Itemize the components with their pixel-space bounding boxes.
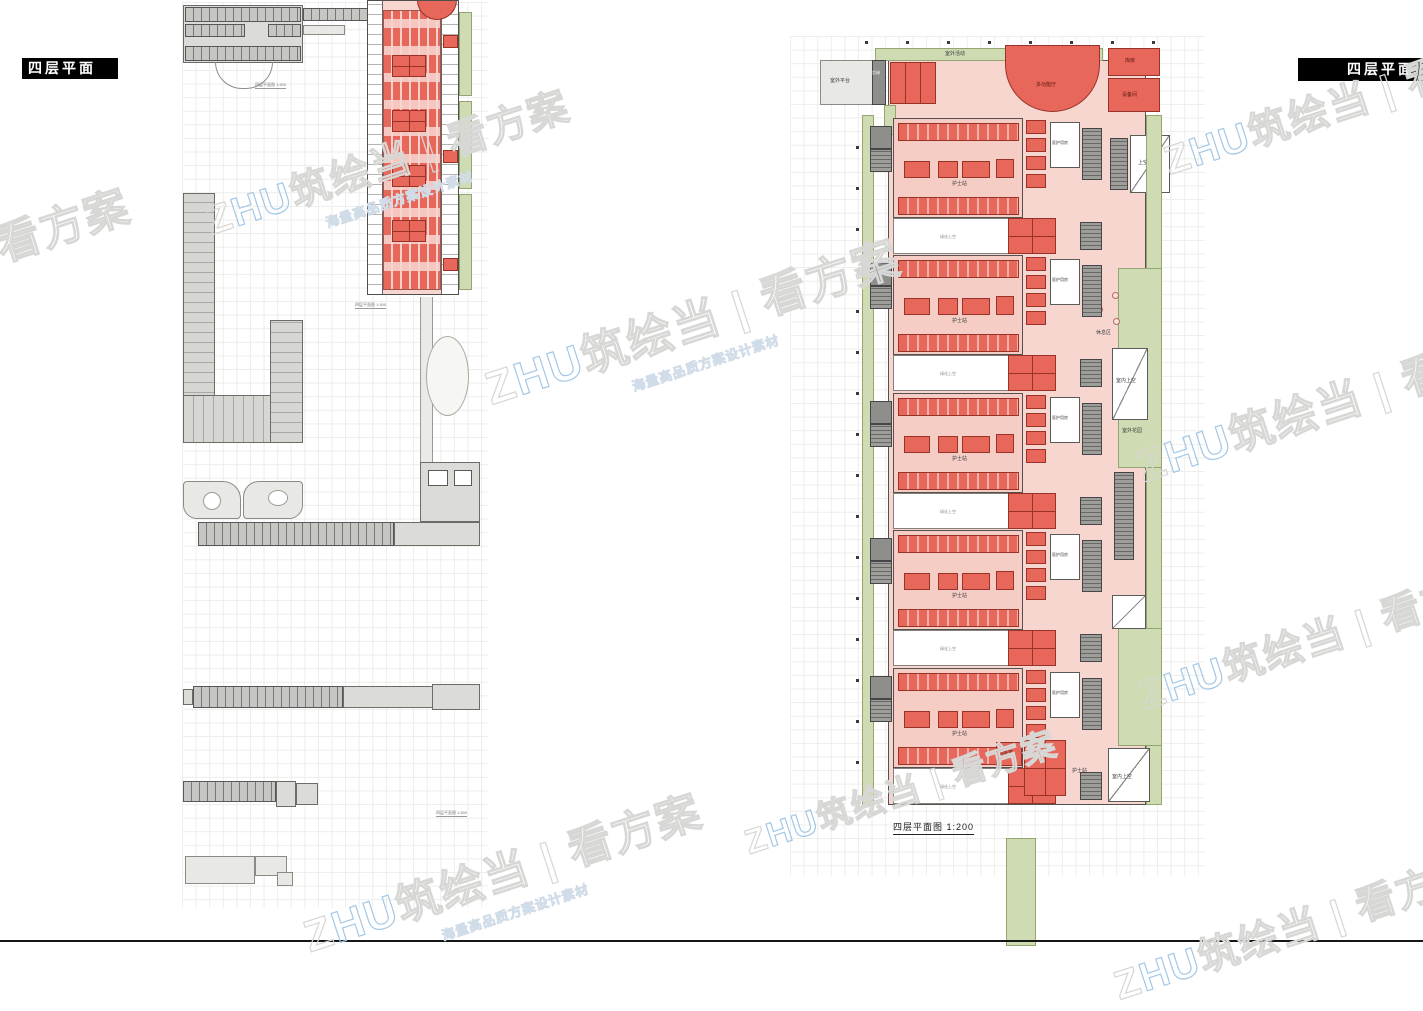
ward-room — [996, 296, 1014, 315]
green-void-label: 绿化上空 — [940, 371, 956, 377]
ward-room — [962, 161, 990, 178]
left-complex-room-row — [185, 7, 301, 22]
patient-bed-row — [898, 123, 1019, 141]
treatment-room — [1026, 395, 1046, 409]
stair-shaft-west — [870, 676, 892, 699]
treatment-room — [1026, 293, 1046, 307]
bottom-nurse-label: 护士站 — [1072, 768, 1087, 774]
ward-room — [904, 436, 930, 453]
elevator-shaft — [1082, 265, 1102, 317]
ward-modules: 护士站 医护用房 绿化上空 护士站 医护用房 — [700, 0, 1423, 946]
ward-room — [996, 571, 1014, 590]
staff-room-label: 医护用房 — [1052, 277, 1068, 283]
doctor-office-suite — [1008, 355, 1056, 391]
nurse-station-label: 护士站 — [952, 593, 967, 599]
stair-shaft-west — [870, 699, 892, 722]
ward-room — [962, 298, 990, 315]
strip2-rooms — [193, 686, 343, 708]
strip3-rooms — [183, 781, 276, 802]
treatment-room — [1026, 724, 1046, 738]
staff-room-label: 医护用房 — [1052, 415, 1068, 421]
green-void: 绿化上空 — [893, 355, 1013, 391]
green-void-label: 绿化上空 — [940, 234, 956, 240]
bottom-rule — [0, 940, 1423, 942]
treatment-room — [1026, 586, 1046, 600]
ward-room — [938, 298, 958, 315]
ward-room — [996, 159, 1014, 178]
treatment-room — [1026, 311, 1046, 325]
elevator-shaft — [1082, 540, 1102, 592]
service-room — [428, 470, 448, 486]
stair-shaft-west — [870, 263, 892, 286]
treatment-room — [1026, 568, 1046, 582]
ward-room — [904, 711, 930, 728]
garden-pond — [268, 490, 288, 506]
treatment-room — [1026, 670, 1046, 684]
treatment-room — [1026, 156, 1046, 170]
treatment-room — [1026, 257, 1046, 271]
treatment-room — [1026, 532, 1046, 546]
left-plan-caption-1: 四层平面图 1:500 — [255, 82, 286, 89]
duty-room-label: 值班室 — [998, 750, 1013, 756]
treatment-room — [1026, 174, 1046, 188]
staff-room-label: 医护用房 — [1052, 552, 1068, 558]
treatment-room — [1026, 275, 1046, 289]
stair-shaft-west — [870, 424, 892, 447]
patient-bed-row — [898, 535, 1019, 553]
patient-bed-row — [898, 260, 1019, 278]
right-plan-caption: 四层平面图 1:200 — [893, 820, 974, 835]
strip2-corridor — [343, 686, 433, 708]
ward-module: 护士站 医护用房 绿化上空 — [868, 668, 1158, 805]
u-building-east-wing — [270, 320, 303, 443]
garden-pond — [203, 492, 221, 510]
stair-shaft-west — [870, 286, 892, 309]
louver-shaft — [1080, 634, 1102, 662]
treatment-room — [1026, 706, 1046, 720]
treatment-room — [1026, 413, 1046, 427]
oval-lawn — [426, 336, 469, 416]
treatment-room — [1026, 550, 1046, 564]
ward-room — [962, 436, 990, 453]
left-plan-caption-3: 四层平面图 1:500 — [436, 810, 467, 817]
ward-room — [904, 573, 930, 590]
green-void: 绿化上空 — [893, 768, 1013, 804]
patient-bed-row — [898, 472, 1019, 490]
ward-room — [938, 573, 958, 590]
staff-room-label: 医护用房 — [1052, 140, 1068, 146]
ward-module: 护士站 医护用房 绿化上空 — [868, 393, 1158, 530]
green-void-label: 绿化上空 — [940, 509, 956, 515]
service-room — [454, 470, 472, 486]
ward-module: 护士站 医护用房 绿化上空 — [868, 530, 1158, 667]
doctor-office-suite — [1008, 630, 1056, 666]
strip2-stub — [183, 689, 193, 705]
ward-block: 护士站 — [893, 255, 1023, 355]
floor-plan-sheet: { "page": { "title_left": "四层平面", "title… — [0, 0, 1423, 946]
stair-shaft-west — [870, 401, 892, 424]
elevator-shaft — [1082, 128, 1102, 180]
left-complex-link-wing — [303, 8, 369, 21]
block4-step — [277, 872, 293, 886]
ward-block: 护士站 — [893, 393, 1023, 493]
ward-room — [938, 436, 958, 453]
tower-garden-strip — [459, 12, 472, 96]
louver-shaft — [1080, 222, 1102, 250]
doctor-office-suite — [1008, 218, 1056, 254]
green-void: 绿化上空 — [893, 493, 1013, 529]
elevator-shaft — [1082, 403, 1102, 455]
left-complex-annex — [303, 25, 345, 35]
louver-shaft — [1080, 497, 1102, 525]
stair-shaft-west — [870, 538, 892, 561]
ward-room — [962, 573, 990, 590]
treatment-room — [1026, 688, 1046, 702]
strip2-end-block — [432, 684, 480, 710]
patient-bed-row — [898, 673, 1019, 691]
nurse-station-label: 护士站 — [952, 456, 967, 462]
tower-outline — [367, 0, 459, 295]
left-plan: 四层平面图 1:500 四层平面图 1:500 四层平面图 1:500 — [0, 0, 700, 946]
patient-bed-row — [898, 334, 1019, 352]
louver-shaft — [1080, 359, 1102, 387]
patient-bed-row — [898, 197, 1019, 215]
ward-module: 护士站 医护用房 绿化上空 — [868, 118, 1158, 255]
tower-garden-strip — [459, 194, 472, 290]
green-void-label: 绿化上空 — [940, 784, 956, 790]
green-void: 绿化上空 — [893, 630, 1013, 666]
watermark-z: Z — [1109, 958, 1148, 1008]
doctor-office-suite — [1008, 493, 1056, 529]
block4 — [185, 856, 255, 884]
ward-room — [904, 161, 930, 178]
long-wing-corridor — [394, 522, 480, 546]
ward-room — [938, 161, 958, 178]
left-complex-room-row — [185, 24, 245, 37]
green-void-label: 绿化上空 — [940, 646, 956, 652]
bottom-ward-suite — [1024, 740, 1066, 796]
nurse-station-label: 护士站 — [952, 181, 967, 187]
elevator-shaft — [1082, 678, 1102, 730]
patient-bed-row — [898, 609, 1019, 627]
treatment-room — [1026, 431, 1046, 445]
staff-room-label: 医护用房 — [1052, 690, 1068, 696]
ward-block: 护士站 — [893, 530, 1023, 630]
ward-module: 护士站 医护用房 绿化上空 — [868, 255, 1158, 392]
tower-garden-strip — [459, 101, 472, 189]
ward-room — [996, 434, 1014, 453]
ward-room — [904, 298, 930, 315]
right-plan: 室外活动 室外平台 货梯 多功能厅 库房 设备间 上空 室外花园 休息区 室内上… — [700, 0, 1423, 946]
treatment-room — [1026, 120, 1046, 134]
nurse-station-label: 护士站 — [952, 731, 967, 737]
nurse-station-label: 护士站 — [952, 318, 967, 324]
treatment-room — [1026, 138, 1046, 152]
ward-room — [962, 711, 990, 728]
left-plan-caption-2: 四层平面图 1:500 — [355, 302, 386, 309]
left-complex-room-row — [185, 46, 301, 61]
stair-shaft-west — [870, 126, 892, 149]
stair-shaft-west — [870, 561, 892, 584]
strip3-block — [276, 781, 296, 807]
treatment-room — [1026, 449, 1046, 463]
ward-room — [996, 709, 1014, 728]
ward-room — [938, 711, 958, 728]
patient-bed-row — [898, 398, 1019, 416]
stair-shaft-west — [870, 149, 892, 172]
long-wing-rooms — [198, 522, 394, 546]
green-void: 绿化上空 — [893, 218, 1013, 254]
louver-shaft — [1080, 772, 1102, 800]
strip3-block — [296, 783, 318, 805]
south-green-band — [1006, 838, 1036, 946]
ward-block: 护士站 — [893, 118, 1023, 218]
watermark-hu: HU — [1134, 939, 1206, 1000]
left-complex-room-row — [268, 24, 301, 37]
